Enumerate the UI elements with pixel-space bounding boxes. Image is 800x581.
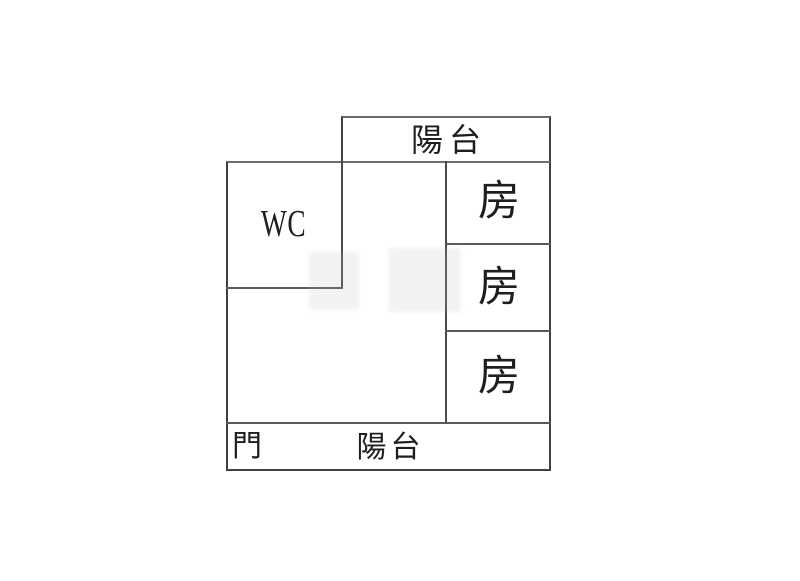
bottom-balcony-label: 陽台	[357, 433, 425, 463]
wc-room: WC	[226, 161, 343, 289]
wc-label: WC	[261, 205, 307, 243]
floor-plan: 陽台 WC 房 房 房 門 陽台	[0, 0, 800, 581]
room-3-label: 房	[478, 356, 520, 398]
room-2-label: 房	[478, 267, 520, 309]
room-1: 房	[445, 161, 551, 245]
room-2: 房	[445, 245, 551, 332]
room-3: 房	[445, 332, 551, 422]
top-balcony: 陽台	[341, 116, 551, 161]
door-label: 門	[232, 432, 262, 462]
top-balcony-label: 陽台	[411, 124, 487, 156]
bottom-balcony: 門 陽台	[226, 422, 551, 471]
room-1-label: 房	[478, 181, 520, 223]
